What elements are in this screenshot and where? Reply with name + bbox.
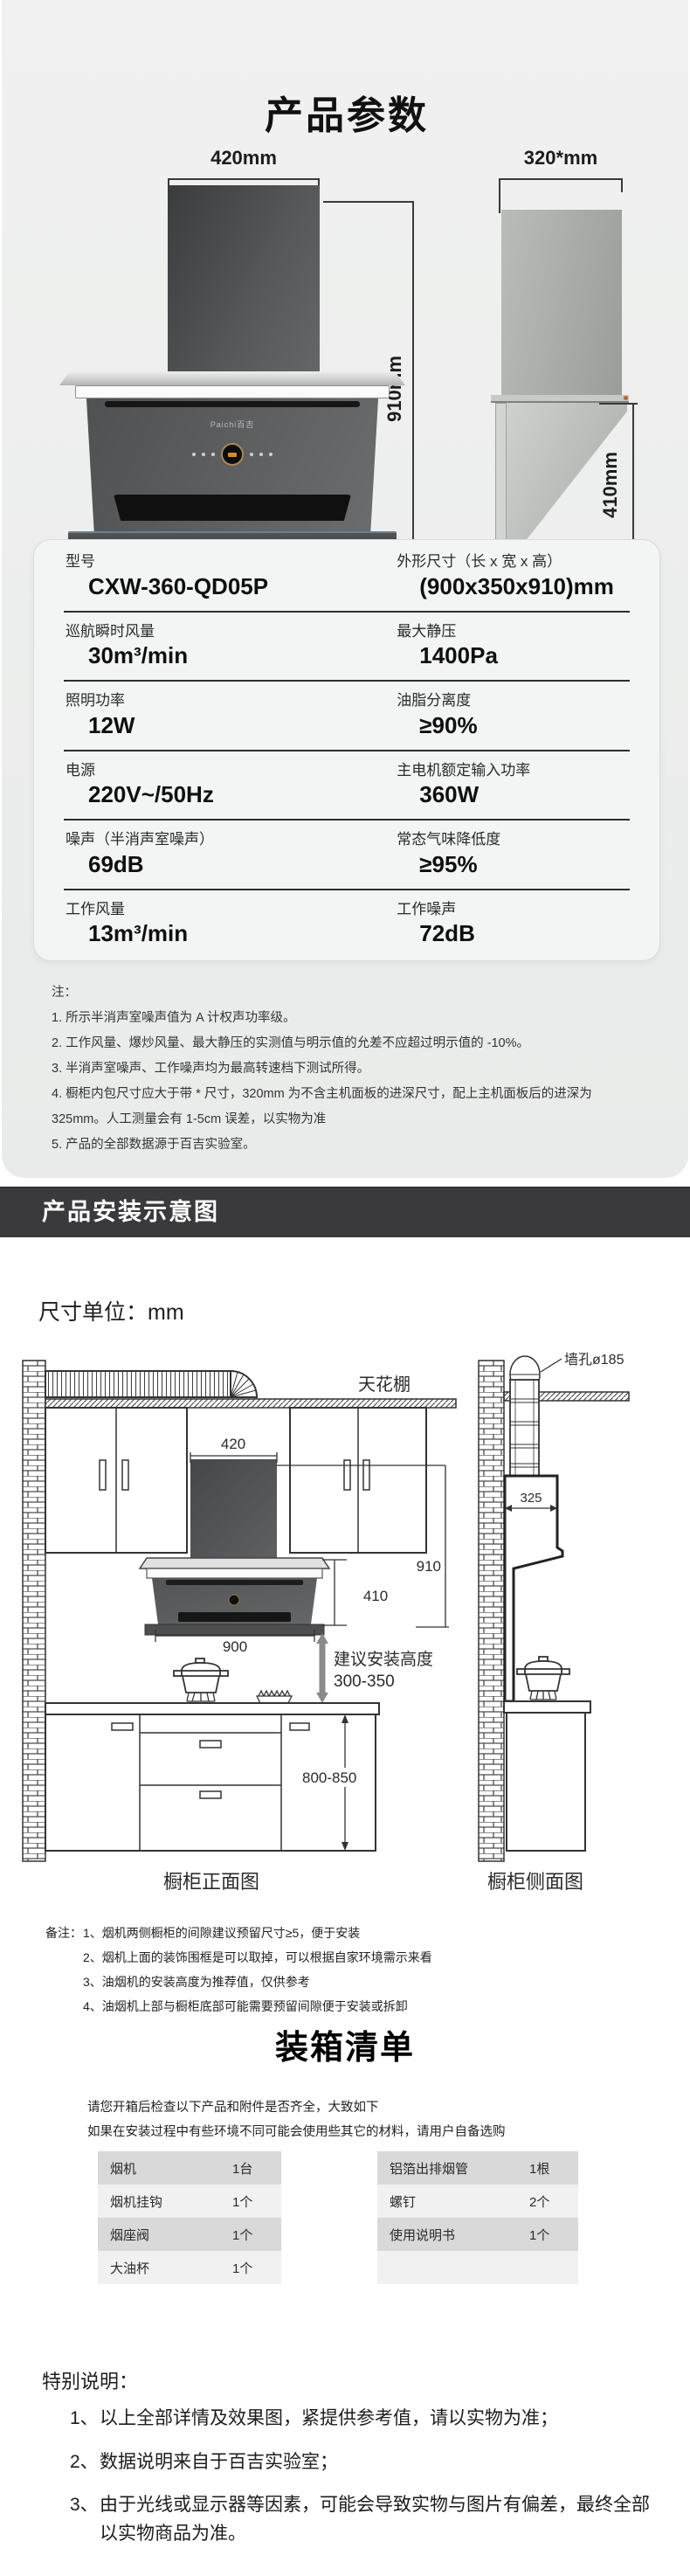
item-number: 3、 [70, 2491, 100, 2548]
brick-wall [23, 1361, 45, 1861]
dim-tick [621, 178, 623, 192]
spec-table: 型号CXW-360-QD05P 外形尺寸（长 x 宽 x 高）(900x350x… [33, 539, 660, 961]
hood-light-strip [75, 385, 390, 398]
remark-item: 1、烟机两侧橱柜的间隙建议预留尺寸≥5，便于安装 [83, 1921, 360, 1945]
note-item: 4. 橱柜内包尺寸应大于带 * 尺寸，320mm 为不含主机面板的进深尺寸，配上… [52, 1082, 635, 1132]
lower-cabinet [507, 1713, 585, 1851]
dim-410-label: 410 [363, 1588, 388, 1604]
note-item: 1. 所示半消声室噪声值为 A 计权声功率级。 [52, 1006, 635, 1031]
drawer-handle [112, 1723, 133, 1730]
hood-control-panel [145, 442, 320, 467]
door-handle [122, 1460, 128, 1490]
install-banner-title: 产品安装示意图 [42, 1187, 219, 1237]
control-dot [202, 453, 205, 456]
cabinet-side-diagram: 墙孔ø185 325 橱柜侧面图 [472, 1350, 690, 1909]
hood-canopy-photo [59, 371, 405, 385]
item-text: 以上全部详情及效果图，紧提供参考值，请以实物为准； [100, 2405, 653, 2434]
product-detail-page: 产品参数 420mm 910mm Paichi百吉 900mm [0, 0, 690, 2576]
indicator-dot [624, 396, 628, 400]
spec-row: 工作风量13m³/min 工作噪声72dB [34, 890, 659, 959]
item-name: 大油杯 [98, 2259, 232, 2277]
spec-value: 30m³/min [66, 641, 397, 670]
dim-front-width: 420mm [168, 147, 320, 170]
wall-hole-label: 墙孔ø185 [564, 1352, 624, 1368]
spec-label: 噪声（半消声室噪声） [66, 830, 397, 850]
note-item: 5. 产品的全部数据源于百吉实验室。 [52, 1132, 635, 1158]
control-dot [211, 453, 215, 456]
front-diagram-caption: 橱柜正面图 [163, 1871, 259, 1893]
countertop [45, 1703, 379, 1714]
arrow-down-icon [316, 1693, 328, 1703]
item-qty: 2个 [529, 2192, 578, 2211]
dim-line [168, 178, 320, 180]
spec-value: 1400Pa [397, 641, 659, 670]
item-number: 2、 [70, 2448, 100, 2477]
special-note-item: 3、 由于光线或显示器等因素，可能会导致实物与图片有偏差，最终全部以实物商品为准… [70, 2491, 653, 2548]
brand-logo: Paichi百吉 [189, 419, 276, 430]
spec-label: 外形尺寸（长 x 宽 x 高） [397, 552, 659, 572]
hood-side-chimney-photo [501, 210, 622, 395]
burner-drawing [257, 1691, 292, 1703]
cabinet-front-diagram: 天花棚 910 420 410 900 建议安装高度 300-350 [16, 1350, 470, 1909]
remark-item: 3、油烟机的安装高度为推荐值，仅供参考 [45, 1970, 657, 1994]
packing-list-title: 装箱清单 [0, 2020, 690, 2068]
hood-chimney-drawing [190, 1459, 277, 1562]
packing-intro: 请您开箱后检查以下产品和附件是否齐全，大致如下 如果在安装过程中有些环境不同可能… [87, 2095, 629, 2144]
leader-line [541, 1359, 562, 1372]
note-item: 2. 工作风量、爆炒风量、最大静压的实测值与明示值的允差不应超过明示值的 -10… [52, 1031, 635, 1056]
unit-label: 尺寸单位：mm [38, 1295, 184, 1326]
spec-value: ≥95% [397, 850, 659, 879]
spec-label: 工作风量 [66, 900, 397, 920]
packing-row: 铝箔出排烟管1根 [377, 2151, 578, 2185]
hood-vent-slot [105, 401, 360, 407]
item-qty: 1个 [232, 2259, 281, 2277]
special-notes: 1、 以上全部详情及效果图，紧提供参考值，请以实物为准； 2、 数据说明来自于百… [70, 2405, 653, 2563]
vertical-duct [510, 1380, 539, 1476]
spec-value: 220V~/50Hz [66, 780, 397, 809]
spec-row: 噪声（半消声室噪声）69dB 常态气味降低度≥95% [34, 821, 659, 889]
item-name: 烟机挂钩 [98, 2192, 232, 2211]
dim-side-height: 410mm [599, 446, 622, 524]
hood-canopy-drawing [140, 1558, 329, 1568]
item-qty: 1台 [232, 2159, 281, 2178]
packing-table-left: 烟机1台 烟机挂钩1个 烟座阀1个 大油杯1个 [98, 2151, 281, 2284]
item-name: 使用说明书 [377, 2226, 529, 2244]
spec-row: 电源220V~/50Hz 主电机额定输入功率360W [34, 751, 659, 820]
control-knob-drawing [229, 1595, 239, 1605]
dim-420-label: 420 [221, 1436, 245, 1452]
side-diagram-caption: 橱柜侧面图 [487, 1871, 583, 1893]
hood-light-strip-drawing [147, 1568, 322, 1578]
spec-value: 72dB [397, 919, 659, 948]
door-handle [100, 1460, 106, 1490]
item-qty: 1个 [232, 2192, 281, 2211]
brick-wall [479, 1361, 504, 1861]
item-qty: 1个 [232, 2226, 281, 2244]
spec-notes: 注： 1. 所示半消声室噪声值为 A 计权声功率级。 2. 工作风量、爆炒风量、… [52, 980, 635, 1158]
remark-item: 2、烟机上面的装饰围框是可以取掉，可以根据自家环境需示来看 [45, 1945, 657, 1970]
drawer-handle [200, 1791, 221, 1798]
page-title: 产品参数 [2, 84, 690, 140]
drawer-handle [200, 1741, 221, 1748]
hood-grease-panel-drawing [178, 1612, 291, 1622]
dim-800-850-label: 800-850 [302, 1769, 356, 1786]
countertop [504, 1701, 590, 1713]
door-handle [344, 1460, 350, 1490]
hood-chimney-photo [168, 185, 320, 371]
item-name: 螺钉 [377, 2192, 529, 2211]
dim-tick [599, 403, 638, 405]
spec-label: 巡航瞬时风量 [66, 622, 397, 642]
knob-display [228, 453, 237, 457]
spec-label: 最大静压 [397, 622, 659, 642]
spec-label: 主电机额定输入功率 [397, 761, 659, 781]
packing-row: 烟座阀1个 [98, 2218, 281, 2251]
spec-label: 照明功率 [66, 691, 397, 711]
spec-value: (900x350x910)mm [397, 572, 659, 601]
dim-side-depth: 320*mm [499, 147, 623, 170]
packing-row: 螺钉2个 [377, 2185, 578, 2218]
spec-label: 工作噪声 [397, 900, 659, 920]
special-note-item: 1、 以上全部详情及效果图，紧提供参考值，请以实物为准； [70, 2405, 653, 2434]
packing-row: 大油杯1个 [98, 2251, 281, 2284]
spec-value: 360W [397, 780, 659, 809]
item-name: 铝箔出排烟管 [377, 2159, 529, 2178]
hood-grease-panel [114, 495, 351, 521]
special-note-item: 2、 数据说明来自于百吉实验室； [70, 2448, 653, 2477]
control-dot [259, 453, 263, 456]
dim-910-label: 910 [417, 1558, 441, 1575]
notes-title: 注： [52, 980, 635, 1006]
item-text: 数据说明来自于百吉实验室； [100, 2448, 653, 2477]
parameters-section: 产品参数 420mm 910mm Paichi百吉 900mm [2, 0, 688, 1178]
control-knob-icon [221, 443, 244, 466]
control-dot [192, 453, 196, 456]
drawer-handle [290, 1723, 309, 1730]
item-text: 由于光线或显示器等因素，可能会导致实物与图片有偏差，最终全部以实物商品为准。 [100, 2491, 653, 2548]
dim-tick [323, 201, 412, 203]
spec-label: 型号 [66, 552, 397, 572]
hood-vent-slot-drawing [166, 1580, 303, 1585]
spec-value: 12W [66, 711, 397, 740]
door-handle [363, 1460, 369, 1490]
packing-row: 烟机1台 [98, 2151, 281, 2185]
packing-intro-line: 请您开箱后检查以下产品和附件是否齐全，大致如下 [87, 2095, 629, 2120]
dim-line [412, 201, 414, 577]
spec-label: 油脂分离度 [397, 691, 659, 711]
special-notes-title: 特别说明： [42, 2366, 138, 2394]
spec-row: 巡航瞬时风量30m³/min 最大静压1400Pa [34, 613, 659, 681]
dim-900-label: 900 [223, 1638, 247, 1655]
packing-table-right: 铝箔出排烟管1根 螺钉2个 使用说明书1个 [377, 2151, 578, 2284]
spec-value: 13m³/min [66, 919, 397, 948]
item-name: 烟机 [98, 2159, 232, 2178]
spec-value: ≥90% [397, 711, 659, 740]
install-remarks: 备注： 1、烟机两侧橱柜的间隙建议预留尺寸≥5，便于安装 2、烟机上面的装饰围框… [45, 1921, 657, 2019]
control-dot [269, 453, 273, 456]
spec-value: 69dB [66, 850, 397, 879]
spec-label: 常态气味降低度 [397, 830, 659, 850]
packing-row [377, 2251, 578, 2284]
item-number: 1、 [70, 2405, 100, 2434]
packing-row: 使用说明书1个 [377, 2218, 578, 2251]
note-item: 3. 半消声室噪声、工作噪声均为最高转速档下测试所得。 [52, 1056, 635, 1082]
pot-drawing [174, 1658, 228, 1701]
item-qty: 1根 [529, 2159, 578, 2178]
hood-side-ledge [491, 395, 629, 403]
dim-tick [499, 178, 500, 213]
item-name: 烟座阀 [98, 2226, 232, 2244]
dim-325-label: 325 [520, 1491, 542, 1506]
spec-value: CXW-360-QD05P [66, 572, 397, 601]
pot-drawing [517, 1657, 569, 1700]
item-qty: 1个 [529, 2226, 578, 2244]
ceiling-label: 天花棚 [358, 1375, 411, 1395]
hood-tray-drawing [145, 1624, 324, 1635]
install-height-range: 300-350 [334, 1672, 395, 1691]
packing-row: 烟机挂钩1个 [98, 2185, 281, 2218]
spec-row: 型号CXW-360-QD05P 外形尺寸（长 x 宽 x 高）(900x350x… [34, 543, 659, 611]
spec-label: 电源 [66, 761, 397, 781]
control-dot [250, 453, 253, 456]
dim-line [499, 178, 623, 180]
spec-row: 照明功率12W 油脂分离度≥90% [34, 682, 659, 750]
install-height-label: 建议安装高度 [334, 1650, 433, 1669]
install-section-banner: 产品安装示意图 [0, 1187, 690, 1237]
remarks-label: 备注： [45, 1921, 83, 1945]
dim-410-line [322, 1560, 347, 1625]
ceiling-duct [45, 1371, 231, 1397]
ceiling-line [45, 1399, 456, 1408]
remark-item: 4、油烟机上部与橱柜底部可能需要预留间隙便于安装或拆卸 [45, 1994, 657, 2019]
packing-intro-line: 如果在安装过程中有些环境不同可能会使用些其它的材料，请用户自备选购 [87, 2120, 629, 2144]
